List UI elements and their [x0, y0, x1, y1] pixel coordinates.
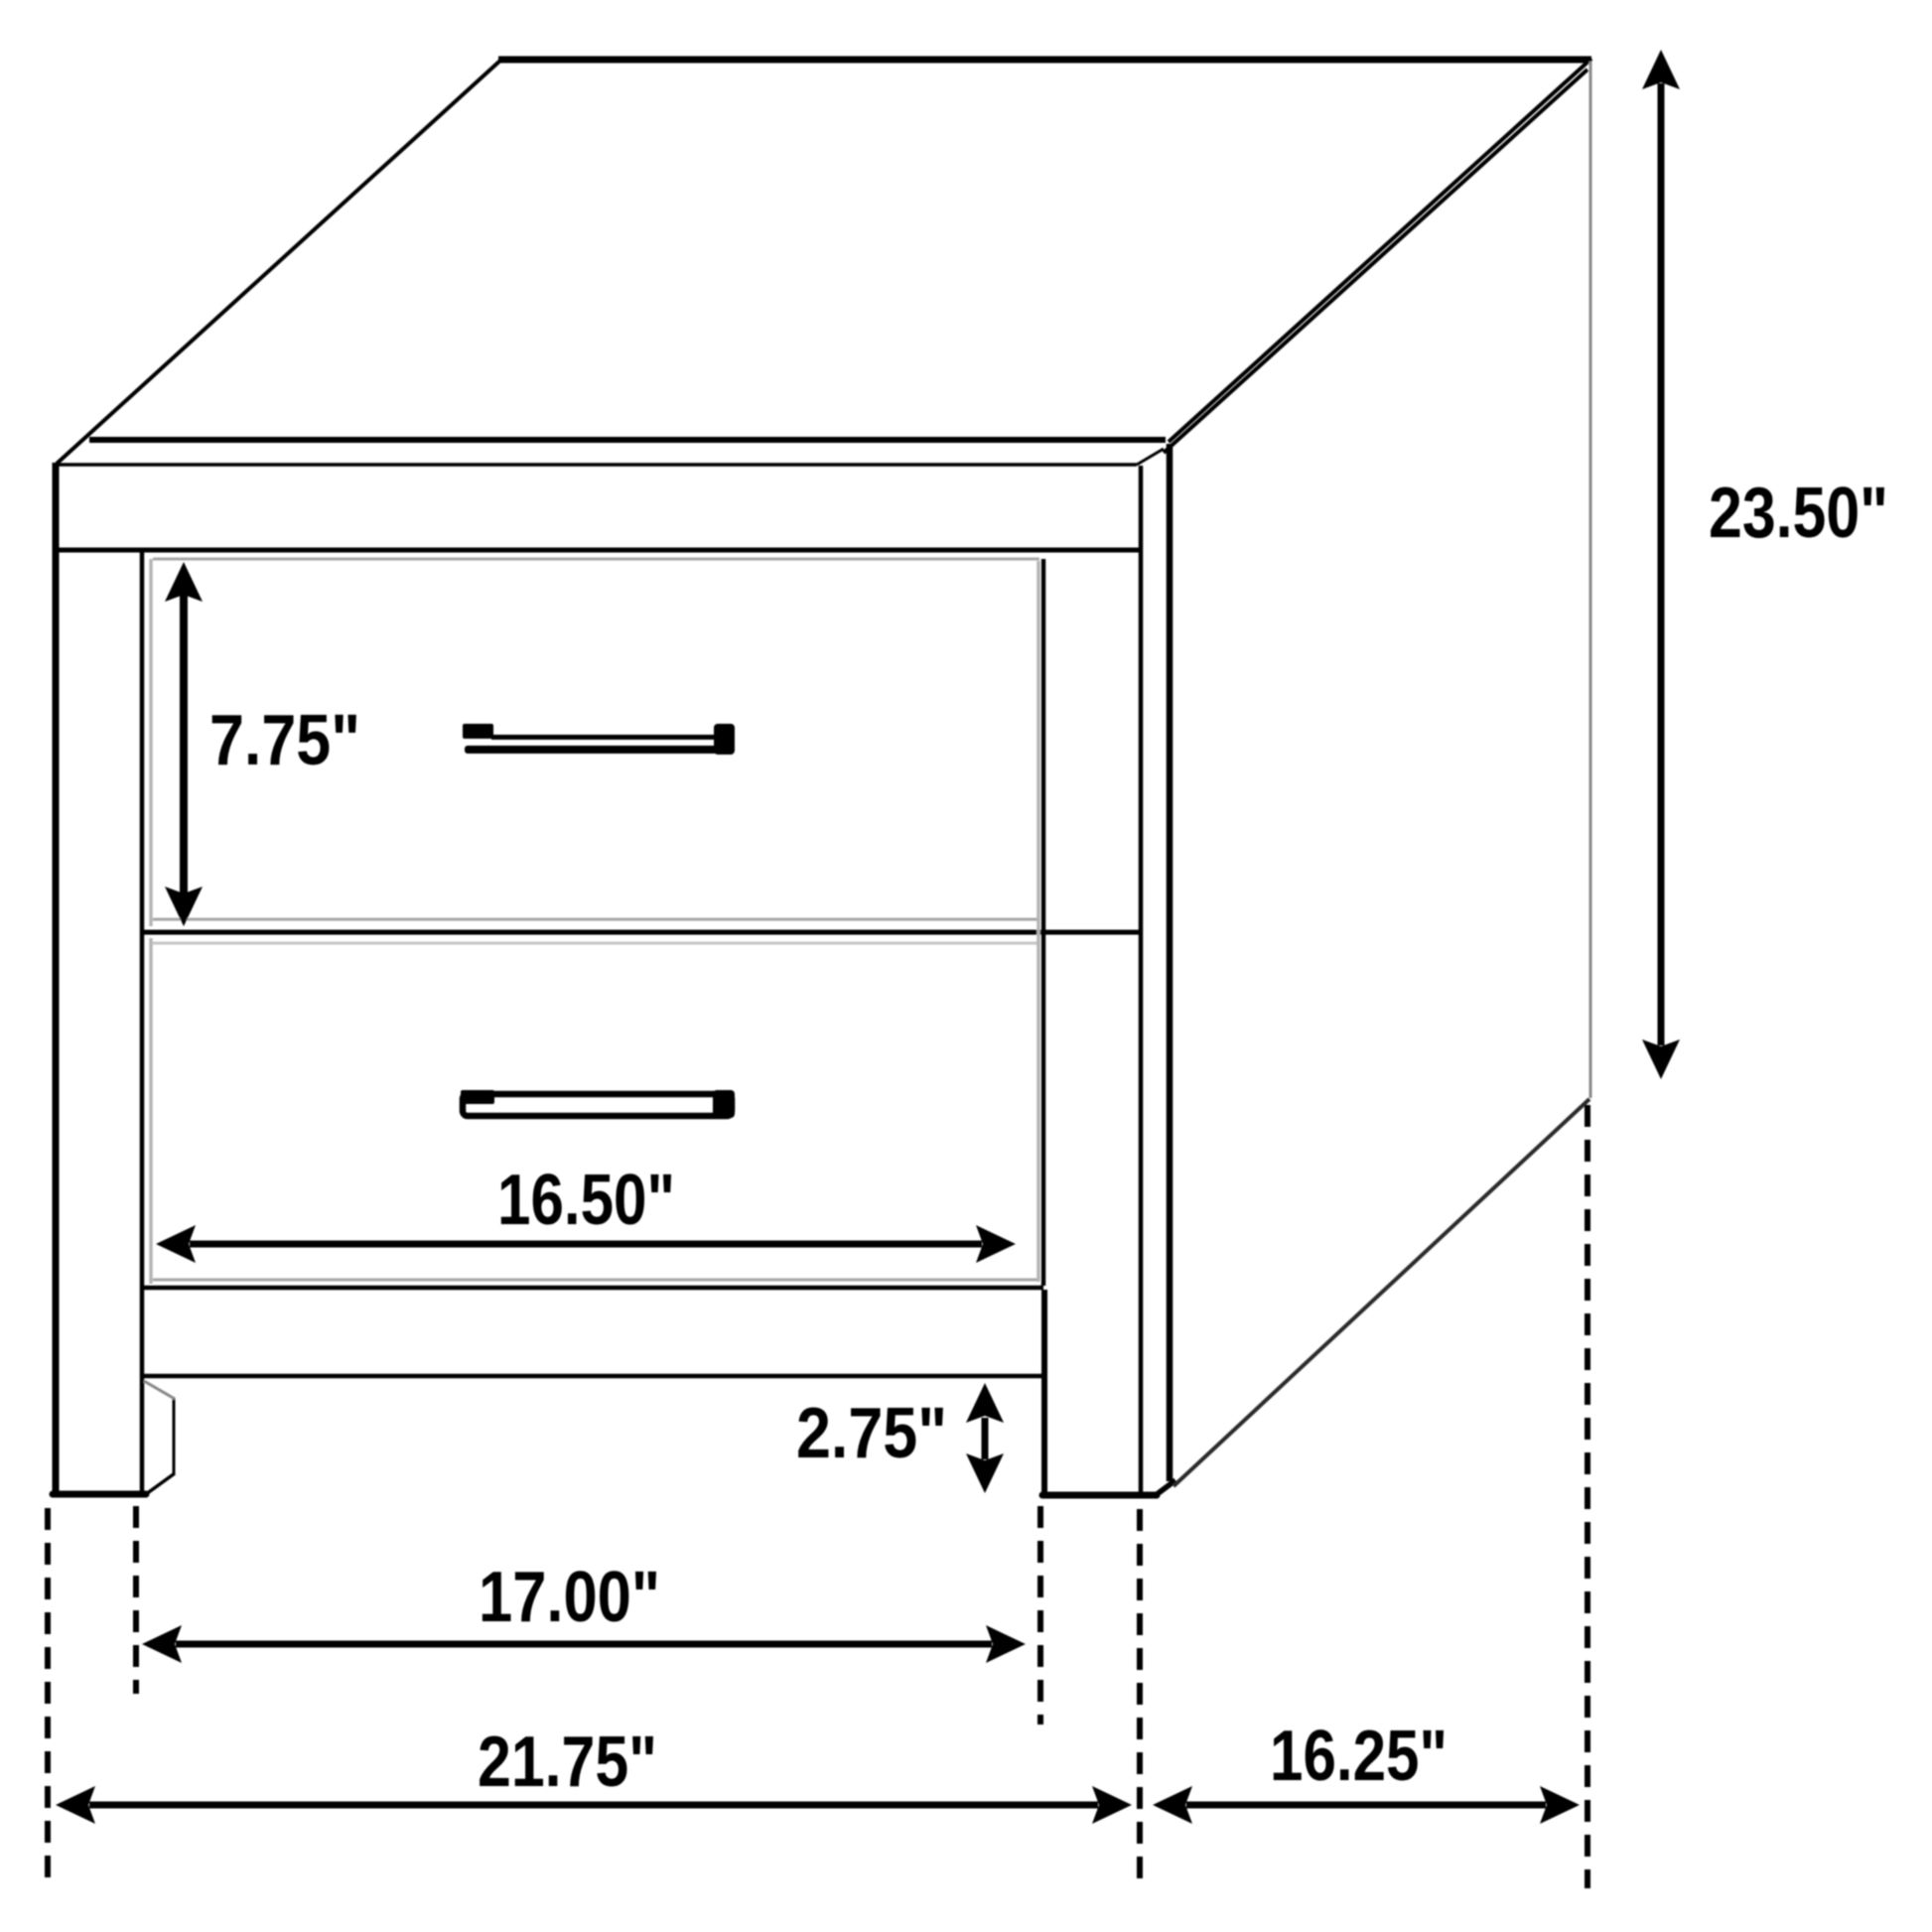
- svg-text:2.75": 2.75": [796, 1394, 947, 1473]
- svg-text:16.50": 16.50": [497, 1161, 675, 1240]
- svg-text:21.75": 21.75": [478, 1723, 657, 1802]
- svg-text:7.75": 7.75": [209, 701, 360, 780]
- svg-text:16.25": 16.25": [1270, 1717, 1448, 1796]
- svg-text:17.00": 17.00": [479, 1558, 660, 1637]
- svg-text:23.50": 23.50": [1709, 474, 1888, 553]
